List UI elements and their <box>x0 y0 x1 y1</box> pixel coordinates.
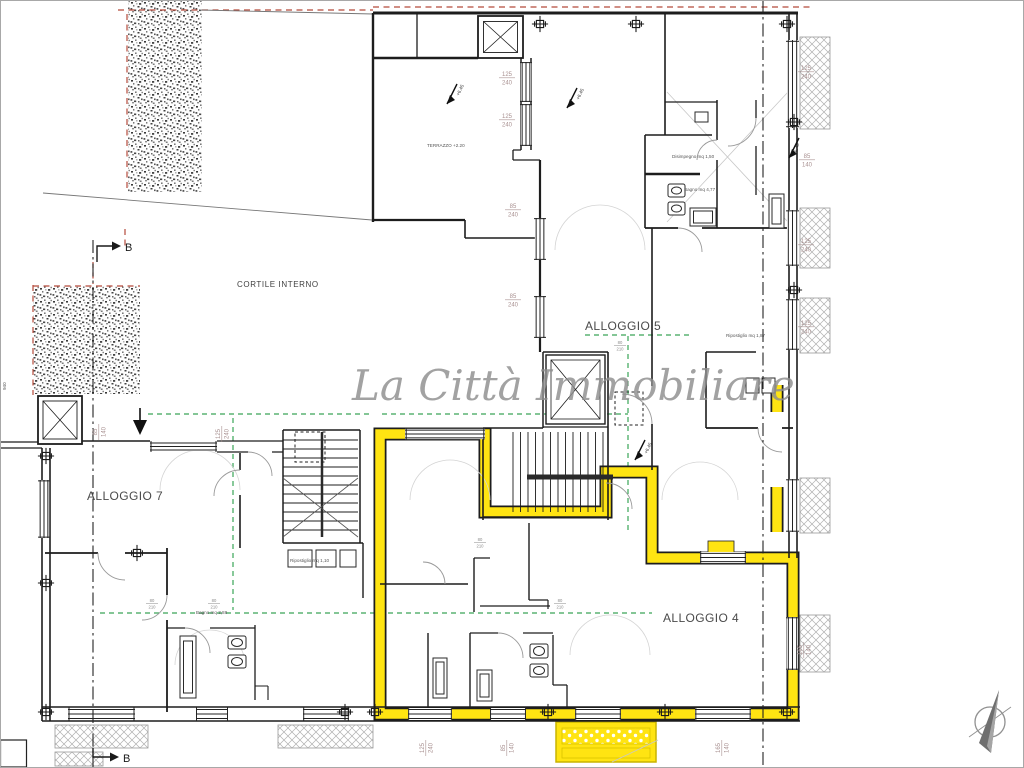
svg-text:210: 210 <box>617 347 625 352</box>
svg-text:240: 240 <box>801 75 812 81</box>
svg-text:Bagno mq 4,77: Bagno mq 4,77 <box>684 187 716 192</box>
svg-text:125: 125 <box>420 742 426 753</box>
svg-text:85: 85 <box>501 744 507 751</box>
svg-text:210: 210 <box>557 605 565 610</box>
elevator-icon-left <box>38 396 82 444</box>
balcony-yellow <box>556 722 656 762</box>
label-alloggio-4: ALLOGGIO 4 <box>663 611 739 625</box>
svg-text:125: 125 <box>801 239 812 245</box>
svg-text:140: 140 <box>102 426 108 437</box>
svg-text:165: 165 <box>798 644 804 655</box>
svg-text:125: 125 <box>502 114 513 120</box>
svg-text:240: 240 <box>225 428 231 439</box>
svg-text:125: 125 <box>801 66 812 72</box>
svg-text:125: 125 <box>502 72 513 78</box>
label-terrazzo: TERRAZZO +2.20 <box>427 143 465 148</box>
svg-text:240: 240 <box>508 213 519 219</box>
svg-text:240: 240 <box>502 123 513 129</box>
floor-plan: CORTILE INTERNO ALLOGGIO 5 ALLOGGIO 7 AL… <box>0 0 1024 768</box>
svg-text:140: 140 <box>725 742 731 753</box>
svg-text:B: B <box>125 242 132 254</box>
svg-text:140: 140 <box>510 742 516 753</box>
svg-text:240: 240 <box>801 248 812 254</box>
label-cortile-interno: CORTILE INTERNO <box>237 280 319 289</box>
svg-text:240: 240 <box>801 330 812 336</box>
svg-text:80: 80 <box>558 598 563 603</box>
svg-text:80: 80 <box>212 598 217 603</box>
label-alloggio-7: ALLOGGIO 7 <box>87 489 163 503</box>
window-symbol <box>405 427 485 441</box>
svg-text:140: 140 <box>807 644 813 655</box>
svg-text:80: 80 <box>618 340 623 345</box>
svg-text:210: 210 <box>149 605 157 610</box>
svg-text:165: 165 <box>716 742 722 753</box>
svg-text:240: 240 <box>502 81 513 87</box>
svg-text:85: 85 <box>510 294 517 300</box>
svg-text:140: 140 <box>802 163 813 169</box>
svg-text:Bagno mq 3,88: Bagno mq 3,88 <box>196 610 228 615</box>
svg-text:Ripostiglio mq 1,87: Ripostiglio mq 1,87 <box>726 333 766 338</box>
svg-text:240: 240 <box>508 303 519 309</box>
svg-text:240: 240 <box>429 742 435 753</box>
svg-text:B: B <box>123 753 130 765</box>
label-alloggio-5: ALLOGGIO 5 <box>585 319 661 333</box>
svg-text:210: 210 <box>211 605 219 610</box>
watermark: La Città Immobiliare <box>351 361 795 410</box>
svg-text:210: 210 <box>477 544 485 549</box>
svg-text:85: 85 <box>804 154 811 160</box>
elevator-icon-top <box>478 16 523 58</box>
svg-text:Disimpegno mq 1,50: Disimpegno mq 1,50 <box>672 154 715 159</box>
svg-text:Ripostiglio mq 1,10: Ripostiglio mq 1,10 <box>290 558 330 563</box>
svg-text:125: 125 <box>801 321 812 327</box>
svg-text:85: 85 <box>510 204 517 210</box>
svg-text:125: 125 <box>216 428 222 439</box>
svg-text:80: 80 <box>150 598 155 603</box>
edge-note: 940 <box>2 382 7 390</box>
svg-text:85: 85 <box>93 428 99 435</box>
svg-text:80: 80 <box>478 537 483 542</box>
